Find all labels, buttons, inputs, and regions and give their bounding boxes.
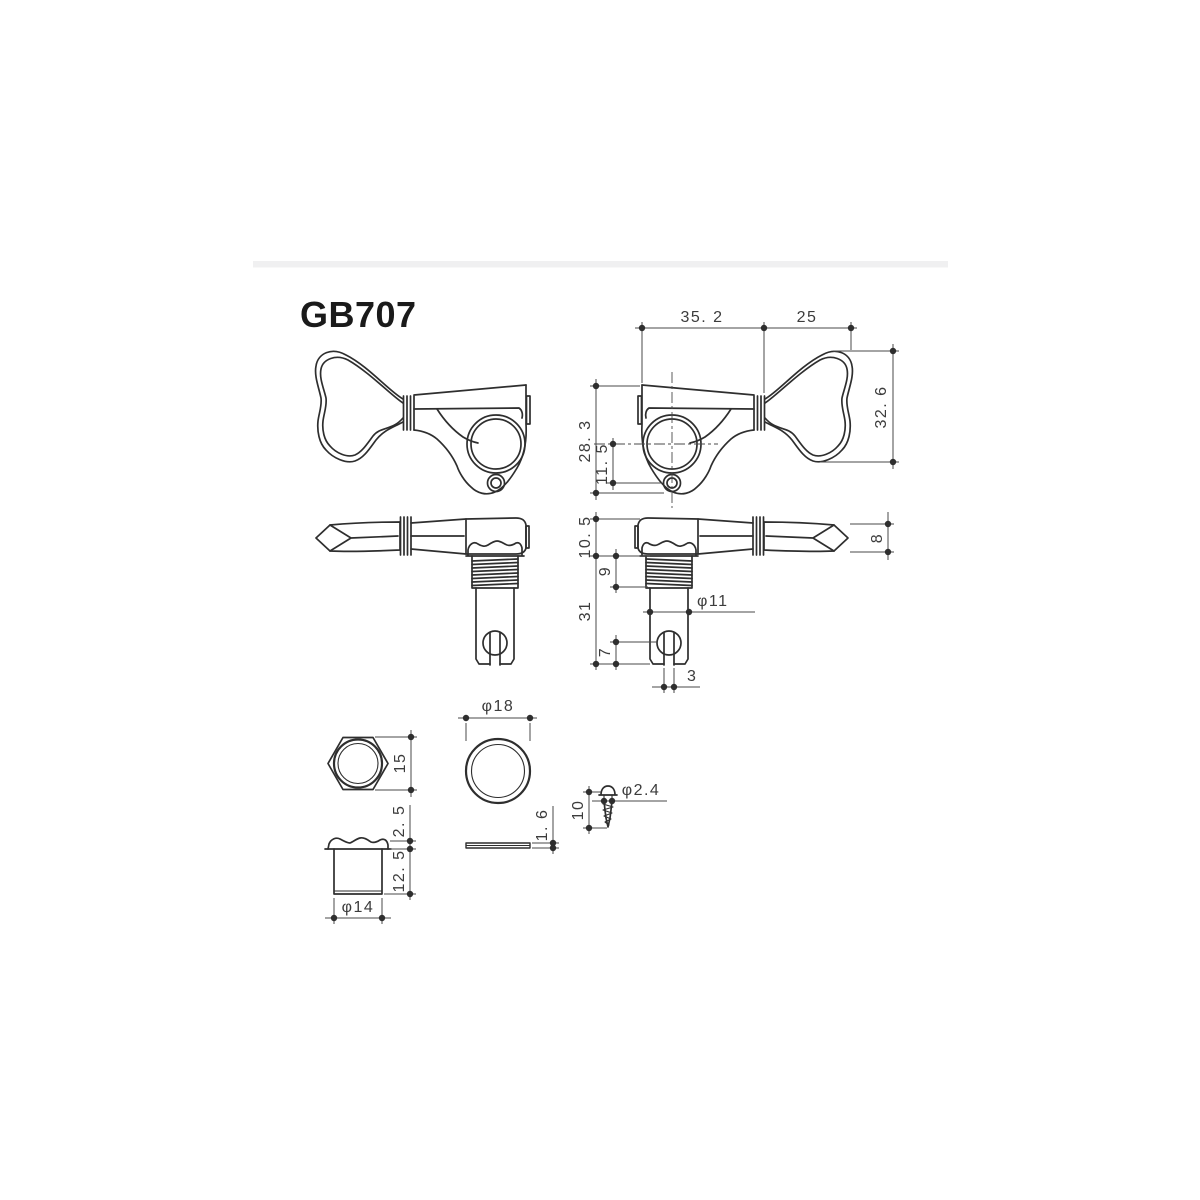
diagram-canvas: GB707	[0, 0, 1200, 1200]
washer-side-view	[466, 843, 530, 848]
dim-thread-length-label: 9	[597, 566, 614, 576]
tuner-front-view-left	[316, 351, 530, 493]
dimension-endpoints	[331, 325, 896, 921]
dim-screw-hole-offset-label: 11. 5	[594, 443, 611, 485]
photo-edge-band	[253, 261, 948, 268]
dim-nut-across-flats-label: 15	[392, 753, 409, 774]
dim-post-length-label: 31	[577, 601, 594, 622]
bushing-side-view	[325, 838, 391, 894]
dim-housing-depth-label: 10. 5	[577, 515, 594, 558]
tuner-top-view-right	[635, 517, 848, 665]
tuner-front-view-right	[638, 351, 852, 493]
technical-drawing-page: GB707	[0, 0, 1200, 1200]
dim-bushing-flange-label: 2. 5	[391, 805, 408, 838]
dim-key-thickness-label: 8	[869, 533, 886, 543]
dim-bushing-body-label: 12. 5	[391, 849, 408, 892]
screw-side-view	[599, 786, 617, 827]
dim-housing-height-label: 28. 3	[577, 419, 594, 462]
dim-slot-depth-label: 7	[597, 647, 614, 657]
dim-bushing-diameter-label: φ14	[342, 899, 375, 916]
tuner-top-view-left	[316, 517, 529, 665]
dim-washer-thickness-label: 1. 6	[534, 809, 551, 842]
dim-washer-diameter-label: φ18	[482, 698, 515, 715]
page-title: GB707	[300, 294, 417, 335]
dimension-labels: 35. 2 25 32. 6 28. 3 11. 5 10. 5 9 31 φ1…	[342, 309, 890, 916]
dim-total-height-label: 32. 6	[873, 385, 890, 428]
dim-screw-length-label: 10	[570, 800, 587, 821]
dim-screw-diameter-label: φ2.4	[622, 782, 661, 799]
hex-nut-top-view	[328, 738, 388, 790]
washer-top-view	[466, 739, 530, 803]
dim-width-left-label: 35. 2	[680, 309, 723, 326]
dim-slot-width-label: 3	[687, 668, 697, 685]
dim-post-diameter-label: φ11	[697, 593, 728, 610]
dim-width-right-label: 25	[797, 309, 818, 326]
